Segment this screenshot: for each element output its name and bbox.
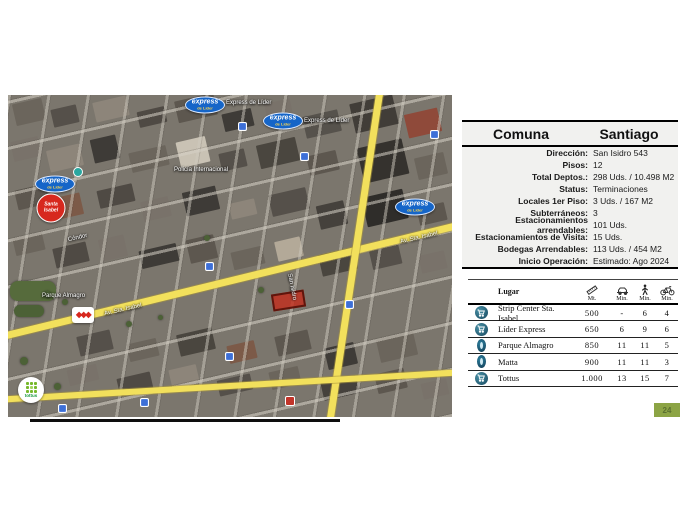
- table-row: Dirección:San Isidro 543: [462, 147, 678, 159]
- table-row: Strip Center Sta. Isabel 500 - 6 4: [468, 305, 678, 321]
- comuna-header: Comuna: [462, 126, 580, 142]
- supermarket-icon: [468, 306, 494, 319]
- express-lider-badge: express de Líder: [395, 199, 435, 216]
- info-value: San Isidro 543: [593, 148, 678, 158]
- pedestrian-icon: [640, 284, 650, 296]
- map-label: Policía Internacional: [174, 167, 228, 174]
- transit-icon: [140, 398, 149, 407]
- minutes-car: -: [610, 308, 634, 318]
- distances-table-header: Lugar Mt. Min. Min. Min.: [468, 279, 678, 305]
- info-value: 101 Uds.: [593, 220, 678, 230]
- info-label: Inicio Operación:: [462, 256, 593, 266]
- place-name: Parque Almagro: [494, 340, 574, 350]
- info-label: Pisos:: [462, 160, 593, 170]
- minutes-car: 13: [610, 373, 634, 383]
- transit-icon: [238, 122, 247, 131]
- info-value: Estimado: Ago 2024: [593, 256, 678, 266]
- santa-isabel-badge: Santa Isabel: [37, 194, 66, 223]
- minutes-bike: 3: [656, 357, 678, 367]
- distances-table: Lugar Mt. Min. Min. Min. Strip Center St…: [468, 279, 678, 387]
- comuna-value: Santiago: [580, 126, 678, 142]
- map-underline-bar: [30, 419, 340, 422]
- info-value: 298 Uds. / 10.498 M2: [593, 172, 678, 182]
- map-label: Express de Líder: [304, 118, 349, 125]
- presentation-slide: Express de Líder Express de Líder Policí…: [0, 0, 680, 510]
- table-row: Pisos:12: [462, 159, 678, 171]
- info-value: 15 Uds.: [593, 232, 678, 242]
- info-label: Total Deptos.:: [462, 172, 593, 182]
- info-value: Terminaciones: [593, 184, 678, 194]
- project-info-table: Comuna Santiago Dirección:San Isidro 543…: [462, 120, 678, 269]
- metro-icon: [468, 339, 494, 352]
- minutes-bike: 4: [656, 308, 678, 318]
- info-label: Estacionamientos de Visita:: [462, 232, 593, 242]
- info-label: Status:: [462, 184, 593, 194]
- table-row: Tottus 1.000 13 15 7: [468, 371, 678, 387]
- metro-station-icon: [285, 396, 295, 406]
- table-row: Inicio Operación:Estimado: Ago 2024: [462, 255, 678, 267]
- metro-icon: [468, 355, 494, 368]
- supermarket-icon: [468, 323, 494, 336]
- transit-icon: [345, 300, 354, 309]
- transit-icon: [205, 262, 214, 271]
- place-name: Tottus: [494, 373, 574, 383]
- express-logo-subtext: de Líder: [186, 107, 224, 111]
- transit-icon: [430, 130, 439, 139]
- transit-icon: [225, 352, 234, 361]
- distance-mt: 650: [574, 324, 610, 334]
- info-value: 113 Uds. / 454 M2: [593, 244, 678, 254]
- table-row: Status:Terminaciones: [462, 183, 678, 195]
- table-row: Parque Almagro 850 11 11 5: [468, 338, 678, 354]
- distance-mt: 1.000: [574, 373, 610, 383]
- location-pin-icon: [73, 167, 83, 177]
- table-row: Estacionamientos de Visita:15 Uds.: [462, 231, 678, 243]
- minutes-walk: 9: [634, 324, 656, 334]
- transit-icon: [58, 404, 67, 413]
- tottus-logo-text: tottus: [25, 393, 38, 398]
- bike-icon: [660, 284, 675, 296]
- minutes-car: 6: [610, 324, 634, 334]
- minutes-car: 11: [610, 357, 634, 367]
- walk-column-header: Min.: [634, 284, 656, 303]
- street-grid: [8, 95, 452, 417]
- transit-icon: [300, 152, 309, 161]
- distance-mt: 900: [574, 357, 610, 367]
- distance-mt: 850: [574, 340, 610, 350]
- minutes-walk: 11: [634, 357, 656, 367]
- minutes-walk: 11: [634, 340, 656, 350]
- express-lider-badge: express de Líder: [185, 97, 225, 114]
- info-value: 3: [593, 208, 678, 218]
- info-label: Bodegas Arrendables:: [462, 244, 593, 254]
- info-value: 12: [593, 160, 678, 170]
- page-number-badge: 24: [654, 403, 680, 417]
- express-lider-badge: express de Líder: [263, 113, 303, 130]
- place-column-header: Lugar: [494, 287, 574, 296]
- express-lider-badge: express de Líder: [35, 176, 75, 193]
- distance-mt: 500: [574, 308, 610, 318]
- table-row: Matta 900 11 11 3: [468, 354, 678, 370]
- express-logo-subtext: de Líder: [264, 123, 302, 127]
- minutes-bike: 7: [656, 373, 678, 383]
- info-table-header: Comuna Santiago: [462, 122, 678, 147]
- place-name: Matta: [494, 357, 574, 367]
- table-row: Locales 1er Piso:3 Uds. / 167 M2: [462, 195, 678, 207]
- table-row: Líder Express 650 6 9 6: [468, 321, 678, 337]
- place-name: Strip Center Sta. Isabel: [494, 303, 574, 323]
- place-name: Líder Express: [494, 324, 574, 334]
- info-value: 3 Uds. / 167 M2: [593, 196, 678, 206]
- info-label: Dirección:: [462, 148, 593, 158]
- ruler-icon: [586, 284, 598, 296]
- table-row: Total Deptos.:298 Uds. / 10.498 M2: [462, 171, 678, 183]
- santa-isabel-diamonds-badge: ◆◆◆: [72, 307, 94, 323]
- minutes-bike: 6: [656, 324, 678, 334]
- car-column-header: Min.: [610, 284, 634, 303]
- minutes-bike: 5: [656, 340, 678, 350]
- express-logo-subtext: de Líder: [36, 186, 74, 190]
- info-label: Locales 1er Piso:: [462, 196, 593, 206]
- minutes-walk: 6: [634, 308, 656, 318]
- table-row: Estacionamientos arrendables:101 Uds.: [462, 219, 678, 231]
- satellite-map: Express de Líder Express de Líder Policí…: [8, 95, 452, 417]
- express-logo-subtext: de Líder: [396, 209, 434, 213]
- distance-column-header: Mt.: [574, 284, 610, 303]
- supermarket-icon: [468, 372, 494, 385]
- minutes-walk: 15: [634, 373, 656, 383]
- map-label: Express de Líder: [226, 100, 271, 107]
- map-label: Parque Almagro: [42, 293, 85, 300]
- car-icon: [616, 284, 629, 296]
- bike-column-header: Min.: [656, 284, 678, 303]
- minutes-car: 11: [610, 340, 634, 350]
- tottus-badge: tottus: [18, 377, 44, 403]
- tottus-flower-icon: [26, 382, 37, 393]
- table-row: Bodegas Arrendables:113 Uds. / 454 M2: [462, 243, 678, 255]
